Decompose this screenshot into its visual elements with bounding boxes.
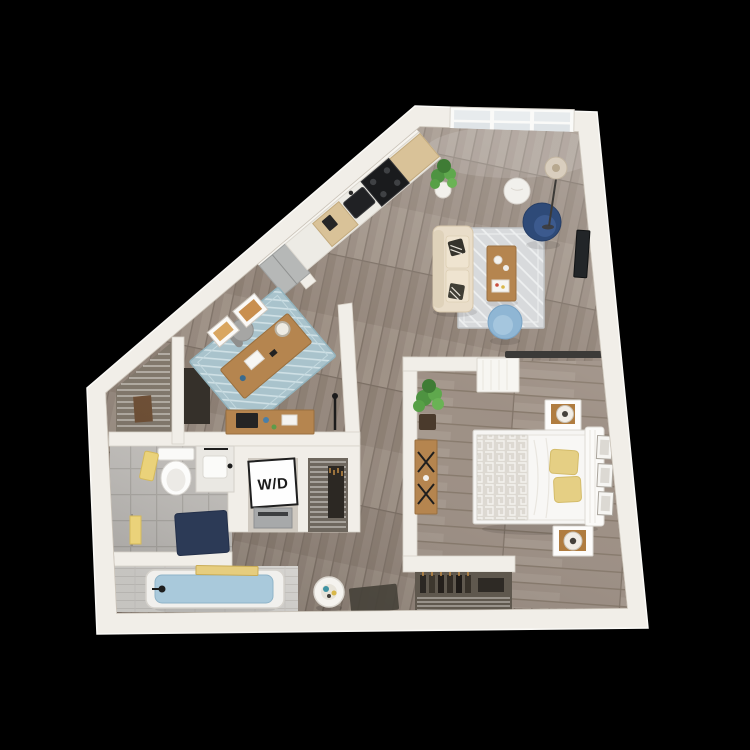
wall-tub-divider [109, 552, 232, 566]
doormat [349, 584, 399, 615]
towel-bar [130, 514, 141, 546]
light-blue-chair [488, 305, 522, 339]
yellow-pillow [549, 449, 579, 475]
nightstand-top [545, 400, 581, 430]
plant-pot [419, 414, 436, 430]
coffee-table [486, 246, 518, 307]
washer-dryer-unit: W/D [248, 458, 297, 507]
navy-accent-chair [523, 203, 561, 241]
toilet [158, 448, 194, 495]
washer-dryer-label: W/D [257, 475, 289, 494]
bath-caddy [196, 565, 258, 575]
floor-plan-3d-render: W/D [0, 0, 750, 750]
sofa [433, 226, 473, 312]
bedroom-console-desk [415, 440, 437, 514]
magazine [492, 280, 509, 292]
bathtub [146, 565, 284, 614]
bath-towel [130, 516, 141, 544]
bath-mat [175, 510, 230, 556]
wall-tv [574, 230, 590, 278]
tub-water [155, 575, 273, 603]
printer [236, 413, 258, 428]
yellow-pillow [553, 476, 581, 502]
side-table [504, 178, 530, 204]
nightstand-bottom [553, 526, 593, 556]
vanity-sink [196, 446, 234, 492]
laundry-closet: W/D [248, 458, 298, 532]
wall-office-left [172, 337, 184, 444]
faucet [228, 464, 233, 469]
office-console-table [226, 410, 314, 434]
bed [473, 427, 604, 526]
linen-closet [308, 458, 348, 532]
bedroom-closet [415, 572, 512, 612]
cup [503, 265, 509, 271]
washer-dryer-front [254, 508, 292, 528]
door-rail [505, 351, 611, 358]
vase [494, 256, 502, 264]
accent-stool [314, 577, 344, 607]
shoes [478, 578, 504, 592]
wall-bedroom-closet [403, 556, 515, 572]
screenshot-canvas: W/D [0, 0, 750, 750]
wall-mounted [574, 230, 590, 278]
patterned-blanket [477, 435, 528, 520]
